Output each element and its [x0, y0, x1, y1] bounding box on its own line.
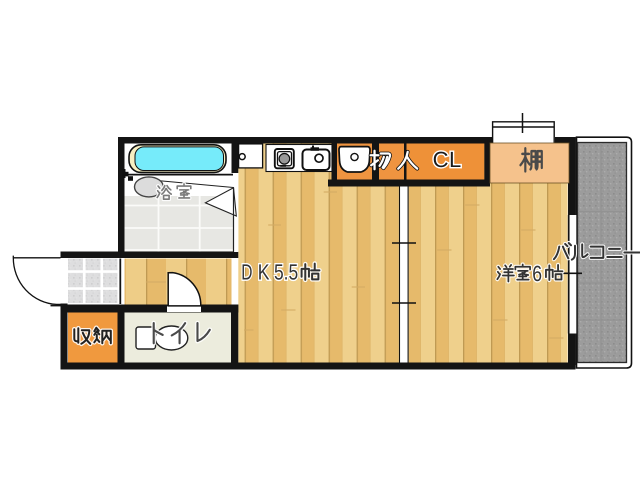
svg-text:CL: CL [433, 147, 462, 172]
svg-text:D: D [241, 260, 252, 285]
svg-text:K: K [258, 260, 270, 285]
svg-text:6: 6 [532, 261, 542, 286]
svg-text:5.5: 5.5 [274, 260, 298, 285]
